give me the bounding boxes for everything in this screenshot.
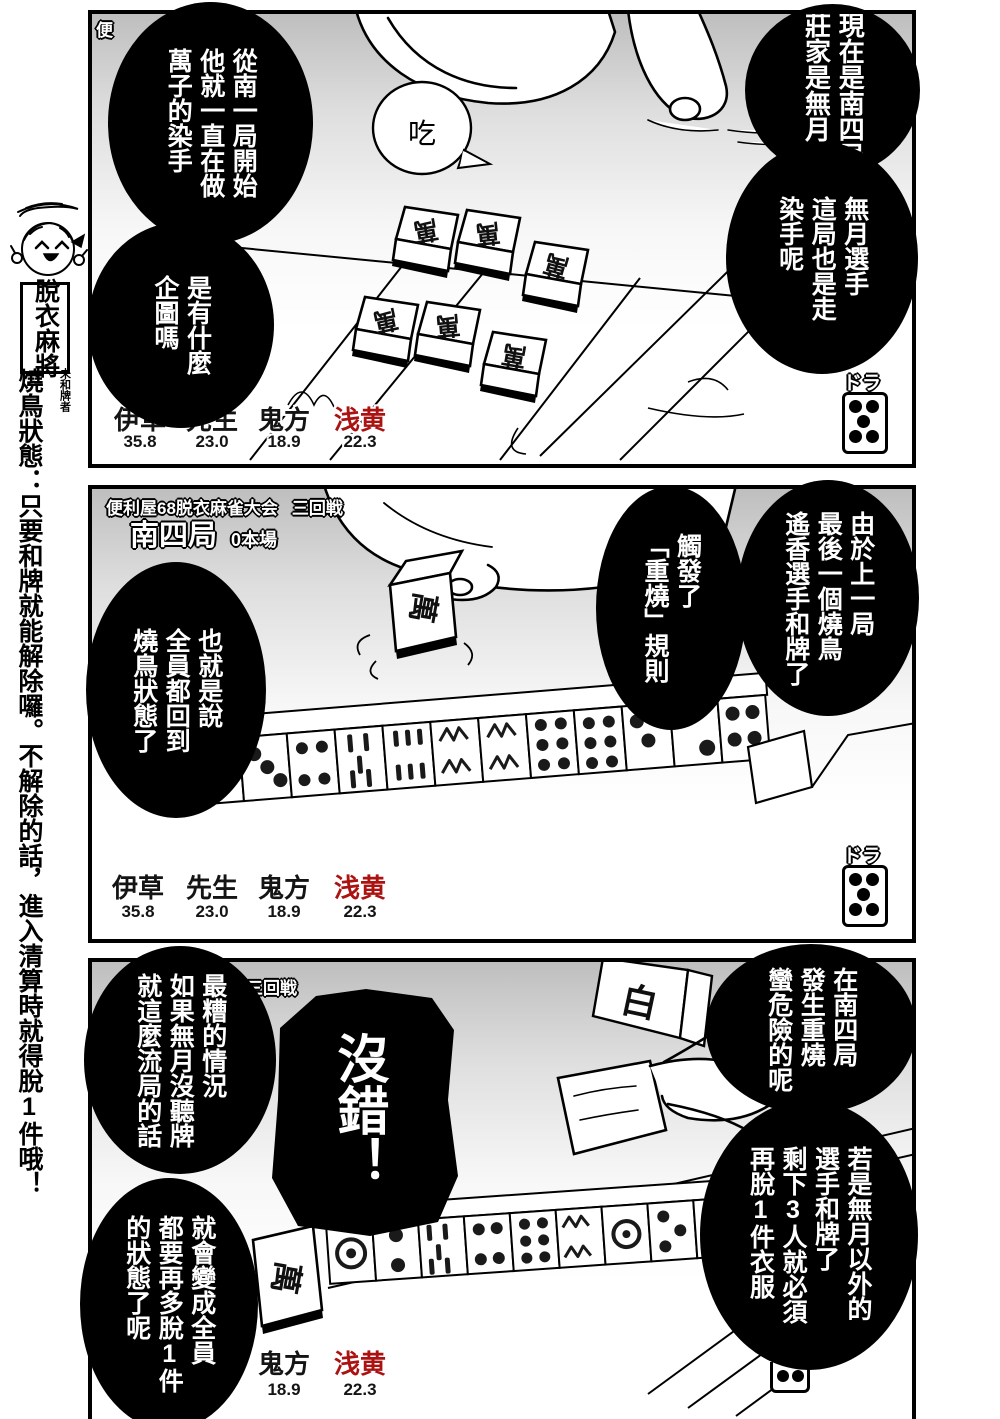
- speech-bubble: 是有什麼 企圖嗎: [88, 222, 274, 428]
- player-name: 浅黄: [315, 1344, 405, 1381]
- player-score: 22.3: [320, 432, 400, 452]
- series-title: 脫衣麻將: [33, 278, 58, 378]
- player-score: 18.9: [244, 902, 324, 922]
- dora-label: ドラ: [843, 841, 881, 868]
- speech-text: 從南一局開始 他就一直在做 萬子的染手: [162, 48, 260, 198]
- speech-text: 在南四局 發生重燒 蠻危險的呢: [762, 967, 860, 1092]
- dora-label: ドラ: [843, 368, 881, 395]
- player-score: 22.3: [320, 1380, 400, 1400]
- shout-bubble-text: 沒錯！: [326, 1032, 390, 1238]
- speech-text: 觸發了 「重燒」規則: [639, 533, 704, 683]
- series-title-box: 脫衣麻將: [20, 282, 70, 374]
- meld-tile-glyph: 萬: [430, 309, 467, 346]
- round-label: 三回戦: [292, 494, 343, 519]
- hand-label: 南四局: [130, 512, 217, 554]
- speech-bubble: 在南四局 發生重燒 蠻危險的呢: [706, 944, 916, 1114]
- speech-bubble: 若是無月以外的 選手和牌了 剩下3人就必須 再脫1件衣服: [700, 1100, 918, 1370]
- speech-text: 由於上一局 最後一個燒鳥 遙香選手和牌了: [779, 511, 877, 686]
- shout-text: 沒錯！: [332, 1032, 384, 1188]
- speech-text: 無月選手 這局也是走 染手呢: [773, 196, 871, 321]
- grabbed-tile-glyph: 萬: [403, 585, 449, 631]
- player-score: 23.0: [172, 902, 252, 922]
- dora-indicator-tile-icon: [842, 392, 888, 454]
- speech-text: 就會變成全員 都要再多脫1件 的狀態了呢: [120, 1215, 218, 1393]
- speech-bubble: 也就是說 全員都回到 燒鳥狀態了: [86, 562, 266, 818]
- player-score: 22.3: [320, 902, 400, 922]
- speech-bubble: 觸發了 「重燒」規則: [596, 486, 746, 730]
- speech-bubble: 最糟的情況 如果無月沒聽牌 就這麼流局的話: [84, 946, 276, 1174]
- speech-text: 也就是說 全員都回到 燒鳥狀態了: [127, 628, 225, 753]
- honba-label: 0本場: [231, 526, 277, 554]
- player-score: 18.9: [244, 432, 324, 452]
- dora-indicator-tile-icon: [842, 865, 888, 927]
- manga-page: 脫衣麻將 未和牌者 燒鳥狀態：只要和牌就能解除囉。不解除的話，進入清算時就得脫1…: [0, 0, 1000, 1419]
- speech-text: 是有什麼 企圖嗎: [149, 275, 214, 375]
- burned-badge: 未和牌者: [58, 368, 70, 412]
- player-score: 18.9: [244, 1380, 324, 1400]
- meld-tile-glyph: 萬: [406, 212, 445, 251]
- player-name: 浅黄: [315, 868, 405, 905]
- speech-bubble: 就會變成全員 都要再多脫1件 的狀態了呢: [80, 1178, 258, 1419]
- call-sfx: 吃: [408, 112, 436, 152]
- rule-note: 燒鳥狀態：只要和牌就能解除囉。不解除的話，進入清算時就得脫1件哦！: [16, 368, 42, 1196]
- wall-tile-glyph: 白: [614, 974, 666, 1026]
- player-score: 35.8: [98, 902, 178, 922]
- speech-text: 若是無月以外的 選手和牌了 剩下3人就必須 再脫1件衣服: [744, 1146, 874, 1324]
- speech-bubble: 無月選手 這局也是走 染手呢: [726, 142, 918, 374]
- meld-tile-glyph: 萬: [366, 302, 406, 342]
- meld-tile-glyph: 萬: [469, 216, 506, 253]
- meld-tile-glyph: 萬: [494, 337, 533, 376]
- discard-tile-glyph: 萬: [263, 1253, 314, 1304]
- speech-text: 最糟的情況 如果無月沒聽牌 就這麼流局的話: [131, 973, 229, 1148]
- panel2-header-line2: 南四局 0本場: [130, 512, 277, 554]
- speech-bubble: 由於上一局 最後一個燒鳥 遙香選手和牌了: [737, 480, 919, 716]
- speech-bubble: 從南一局開始 他就一直在做 萬子的染手: [108, 2, 313, 244]
